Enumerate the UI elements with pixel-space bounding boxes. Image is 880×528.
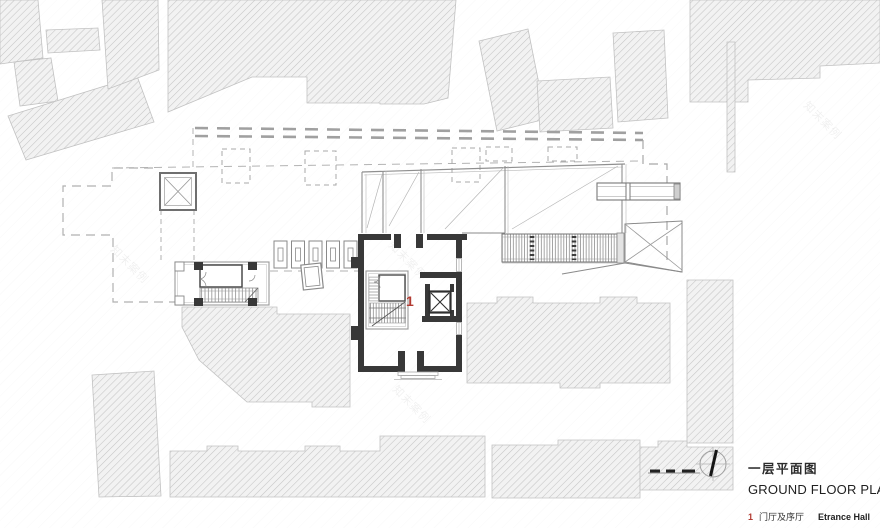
context-building bbox=[467, 297, 670, 388]
title-block: 一层平面图 GROUND FLOOR PLAN 1 门厅及序厅 Etrance … bbox=[748, 458, 878, 523]
main-stair bbox=[366, 271, 408, 329]
floor-plan-drawing: 知末案例 知末案例 知末案例 知末案例 知末案例 知末案例 bbox=[0, 0, 880, 528]
context-building bbox=[687, 280, 733, 443]
legend-key: 1 bbox=[748, 512, 753, 522]
context-building bbox=[92, 371, 161, 497]
legend-row: 1 门厅及序厅 Etrance Hall bbox=[748, 510, 878, 523]
legend-label-en: Etrance Hall bbox=[818, 512, 870, 522]
context-building bbox=[613, 30, 668, 122]
grand-stair-band bbox=[502, 233, 624, 263]
context-building bbox=[640, 441, 733, 490]
rack-unit bbox=[327, 241, 340, 268]
plan-title-en: GROUND FLOOR PLAN bbox=[748, 482, 878, 497]
plan-title-cn: 一层平面图 bbox=[748, 458, 878, 477]
context-building bbox=[0, 0, 43, 64]
planter-box bbox=[301, 263, 324, 290]
context-building bbox=[14, 58, 58, 106]
rack-unit bbox=[274, 241, 287, 268]
stair-pavilion bbox=[175, 262, 269, 306]
context-building bbox=[492, 440, 640, 498]
legend-label-cn: 门厅及序厅 bbox=[759, 510, 804, 523]
room-number-label: 1 bbox=[406, 293, 414, 309]
context-building bbox=[727, 42, 735, 172]
context-building bbox=[46, 28, 100, 53]
scale-bar bbox=[648, 470, 700, 474]
floor-plan-page: 知末案例 知末案例 知末案例 知末案例 知末案例 知末案例 bbox=[0, 0, 880, 528]
context-building bbox=[537, 77, 613, 132]
bridge-corridor bbox=[597, 183, 680, 200]
rack-unit bbox=[292, 241, 305, 268]
